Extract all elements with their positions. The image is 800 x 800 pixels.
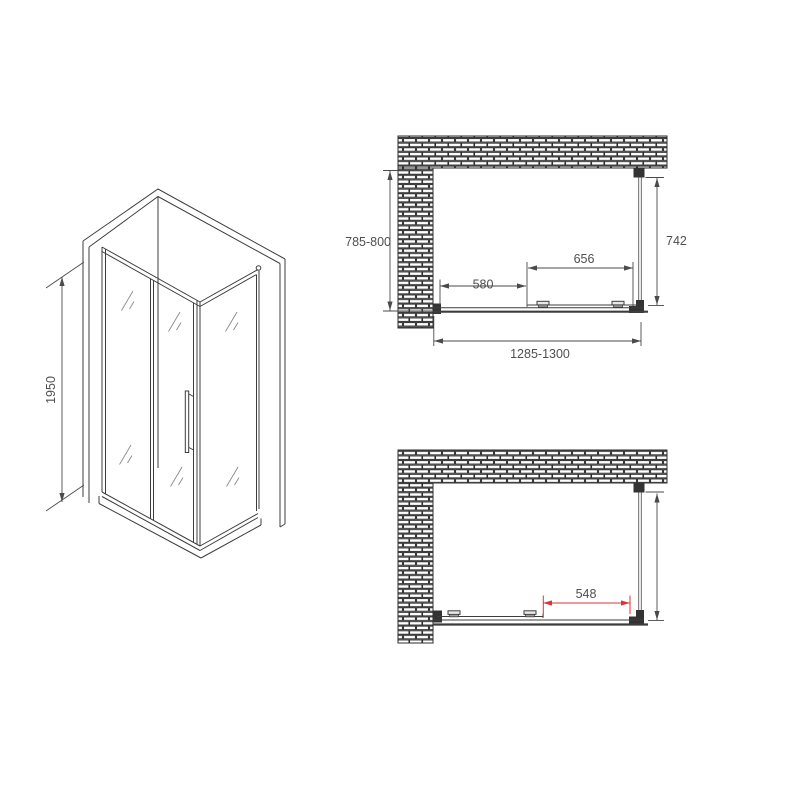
door-dimension-label: 656: [574, 252, 595, 266]
enclosure-plan-closed: [433, 168, 648, 314]
depth-dimension-label: 785-800: [345, 235, 391, 249]
wall-profile-top: [634, 483, 645, 493]
iso-back-walls: [83, 189, 285, 527]
plan-view-closed: 785-800 742 656 580: [345, 136, 687, 361]
iso-shower-tray: [99, 496, 261, 558]
dimensions-closed: 785-800 742 656 580: [345, 171, 687, 362]
wall-hatch-closed: [398, 136, 667, 328]
technical-drawing: 1950: [0, 0, 800, 800]
side-dimension-label: 742: [666, 234, 687, 248]
wall-profile-top: [634, 168, 645, 178]
door-handle: [185, 391, 193, 453]
clear-dimension-label: 580: [473, 278, 494, 292]
wall-hatch-left: [398, 168, 433, 328]
iso-view: 1950: [44, 189, 285, 558]
wall-hatch-top: [398, 136, 667, 168]
opening-dimension-label: 548: [576, 587, 597, 601]
roller: [537, 301, 549, 307]
roller: [448, 611, 460, 617]
door-track-open: [433, 614, 648, 625]
iso-height-dimension: 1950: [44, 262, 84, 511]
width-dimension-label: 1285-1300: [510, 347, 570, 361]
wall-hatch-top: [398, 450, 667, 483]
plan-view-open: 548: [398, 450, 667, 643]
dimensions-open: 548: [543, 492, 664, 621]
wall-hatch-left: [398, 483, 433, 643]
glass-sparkle-marks: [120, 291, 240, 487]
iso-side-panel: [200, 266, 261, 546]
height-dimension-label: 1950: [44, 376, 58, 404]
roller: [612, 301, 624, 307]
drawing-canvas: 1950: [0, 0, 800, 800]
opening-dimension: 548: [543, 587, 630, 617]
roller: [524, 611, 536, 617]
